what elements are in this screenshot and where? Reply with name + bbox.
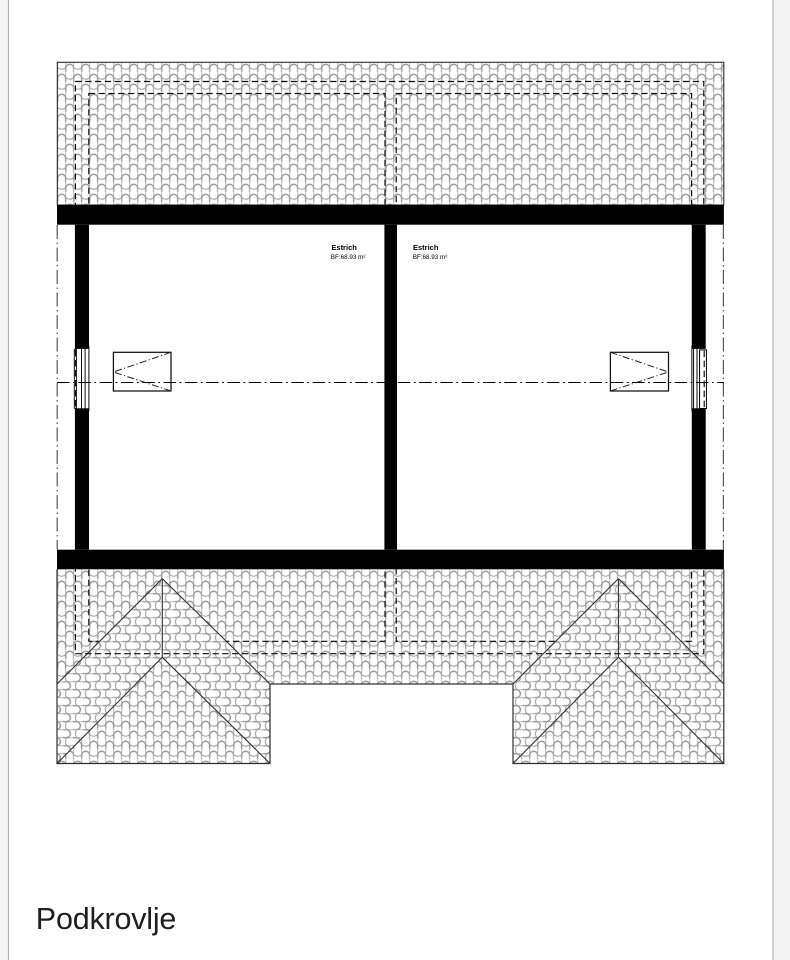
svg-text:BF:68.93 m²: BF:68.93 m²	[331, 254, 366, 261]
svg-text:Estrich: Estrich	[331, 243, 357, 252]
svg-text:Estrich: Estrich	[413, 243, 439, 252]
svg-text:BF:68.93 m²: BF:68.93 m²	[413, 254, 448, 261]
svg-text:Podkrovlje: Podkrovlje	[36, 902, 176, 936]
